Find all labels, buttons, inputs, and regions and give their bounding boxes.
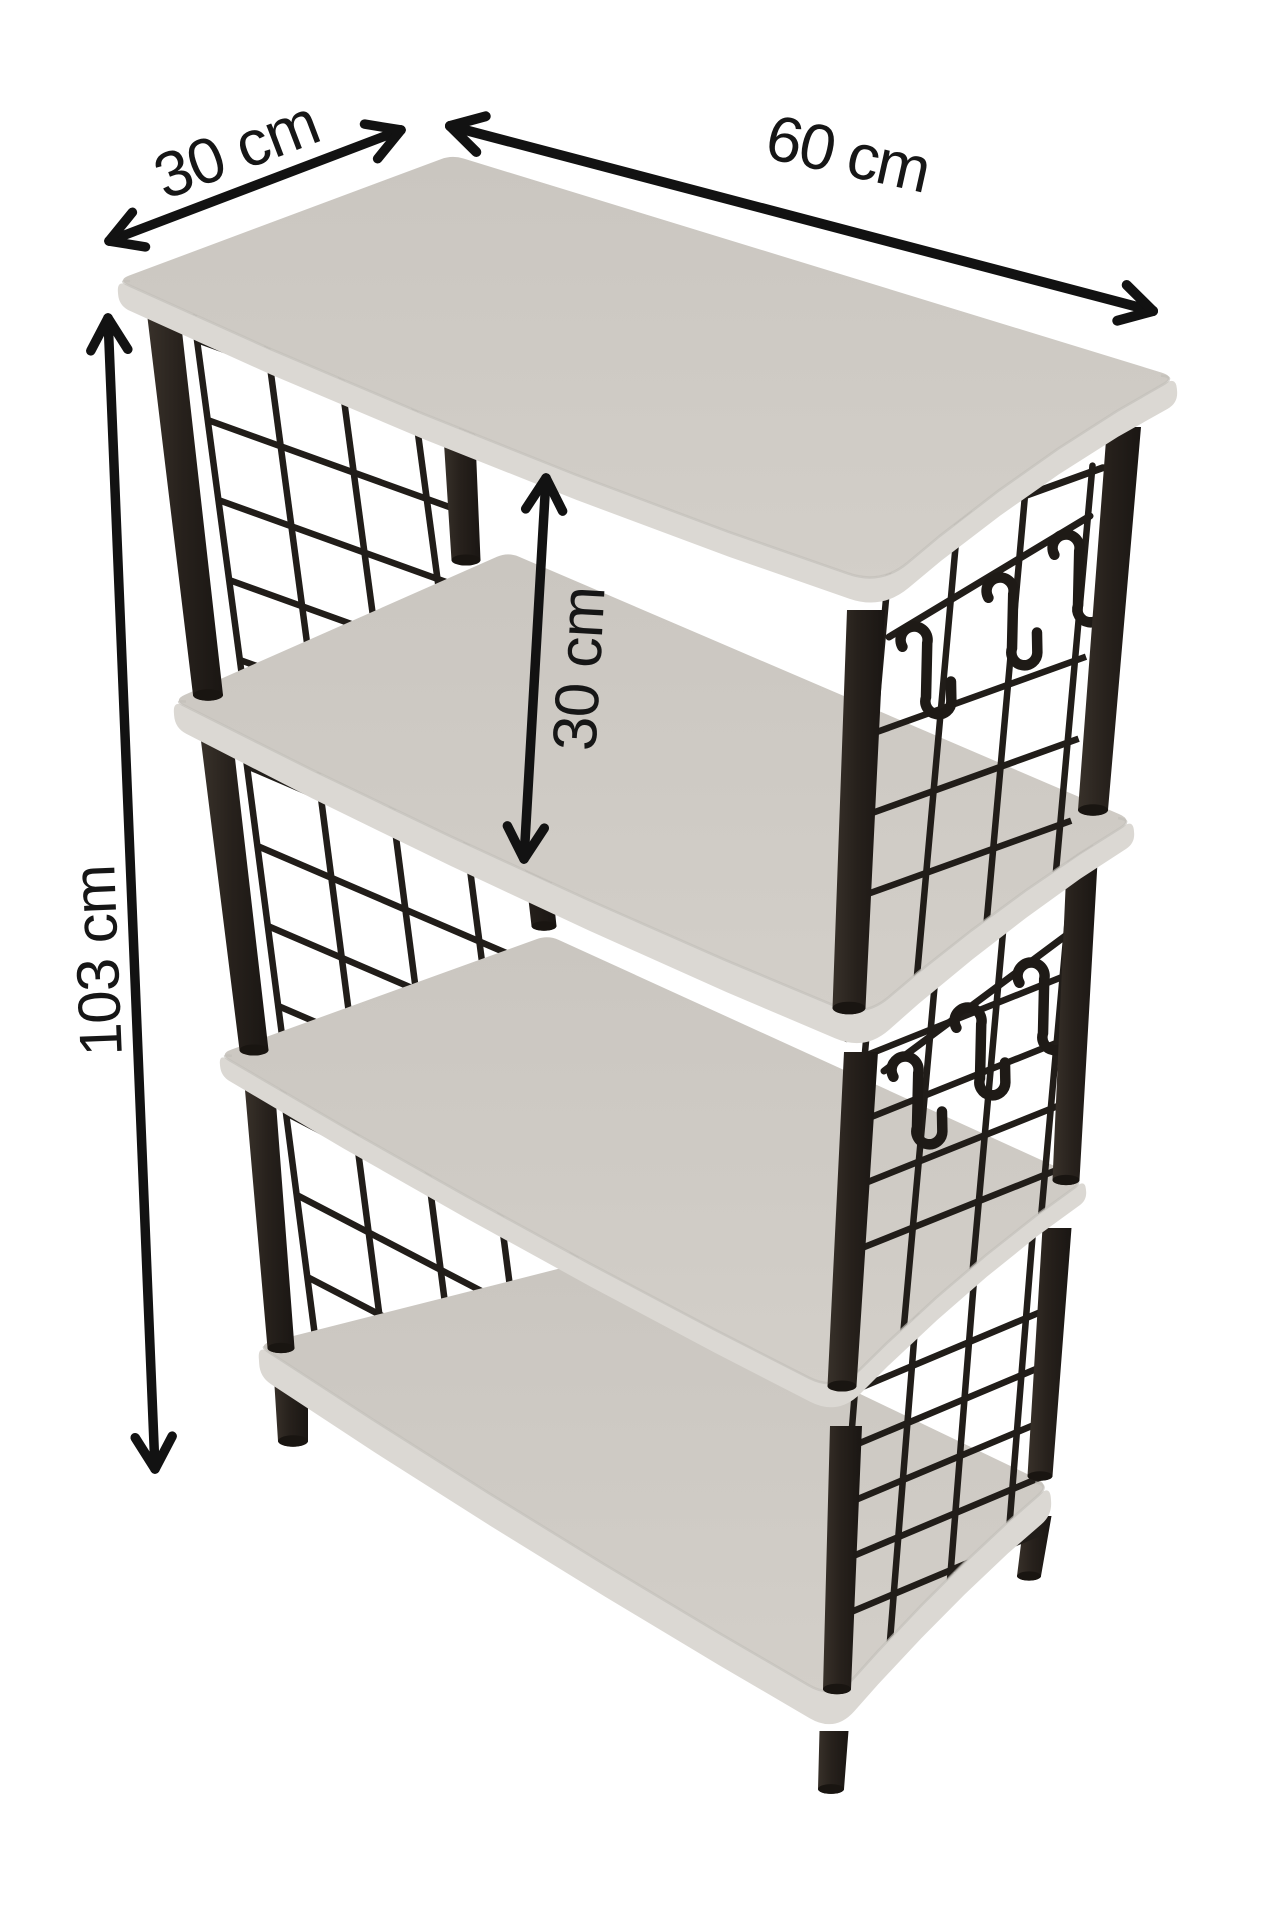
svg-text:30 cm: 30 cm [541, 585, 619, 752]
svg-text:103 cm: 103 cm [60, 864, 135, 1057]
